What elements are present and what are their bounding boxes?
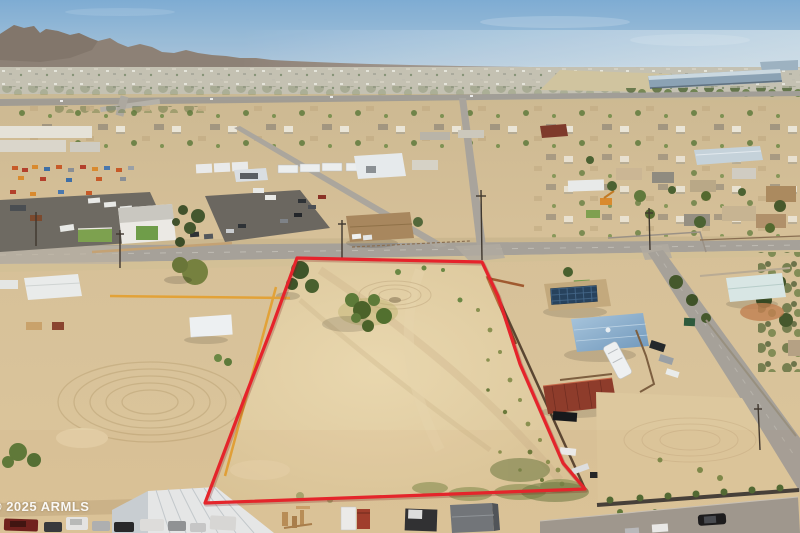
lawn [78, 229, 112, 242]
white-trailer [568, 179, 604, 191]
lawn [136, 226, 158, 240]
black-truck [553, 411, 578, 422]
red-container [52, 322, 64, 330]
white-shed [189, 315, 232, 338]
red-roof-building [540, 124, 568, 138]
mobile-home [24, 274, 82, 300]
watermark: © 2025 ARMLS [0, 499, 89, 514]
teal-roof-house [726, 273, 786, 302]
solar-panel-array [550, 285, 597, 304]
aerial-photo-canvas [0, 0, 800, 533]
red-dirt-patch [740, 303, 784, 321]
aerial-photo: © 2025 ARMLS [0, 0, 800, 533]
dumpster [684, 318, 695, 327]
white-warehouse [354, 153, 406, 179]
